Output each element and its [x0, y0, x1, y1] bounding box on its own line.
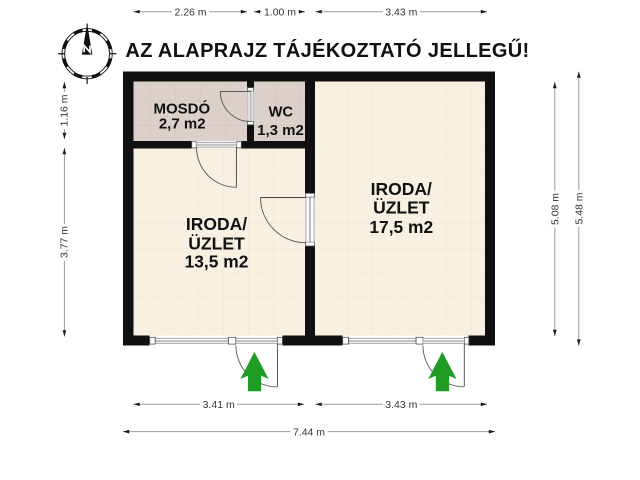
- svg-text:IRODA/: IRODA/: [371, 179, 432, 199]
- svg-text:7.44 m: 7.44 m: [293, 427, 325, 439]
- svg-text:13,5 m2: 13,5 m2: [185, 251, 249, 271]
- svg-text:2,7 m2: 2,7 m2: [159, 116, 206, 133]
- svg-text:5.08 m: 5.08 m: [550, 193, 562, 225]
- svg-text:WC: WC: [268, 104, 293, 120]
- svg-text:3.41 m: 3.41 m: [203, 399, 235, 411]
- svg-text:2.26 m: 2.26 m: [174, 7, 206, 19]
- svg-text:17,5 m2: 17,5 m2: [369, 217, 433, 237]
- svg-text:3.77 m: 3.77 m: [58, 226, 70, 258]
- svg-text:5.48 m: 5.48 m: [574, 192, 586, 224]
- svg-text:IRODA/: IRODA/: [186, 214, 247, 234]
- svg-text:AZ ALAPRAJZ TÁJÉKOZTATÓ JELLEG: AZ ALAPRAJZ TÁJÉKOZTATÓ JELLEGŰ!: [125, 38, 529, 62]
- svg-text:ÜZLET: ÜZLET: [373, 198, 430, 218]
- svg-text:1.16 m: 1.16 m: [58, 94, 70, 126]
- svg-text:1.00 m: 1.00 m: [264, 7, 296, 19]
- svg-text:3.43 m: 3.43 m: [385, 7, 417, 19]
- svg-text:1,3 m2: 1,3 m2: [257, 122, 304, 139]
- svg-text:3.43 m: 3.43 m: [385, 399, 417, 411]
